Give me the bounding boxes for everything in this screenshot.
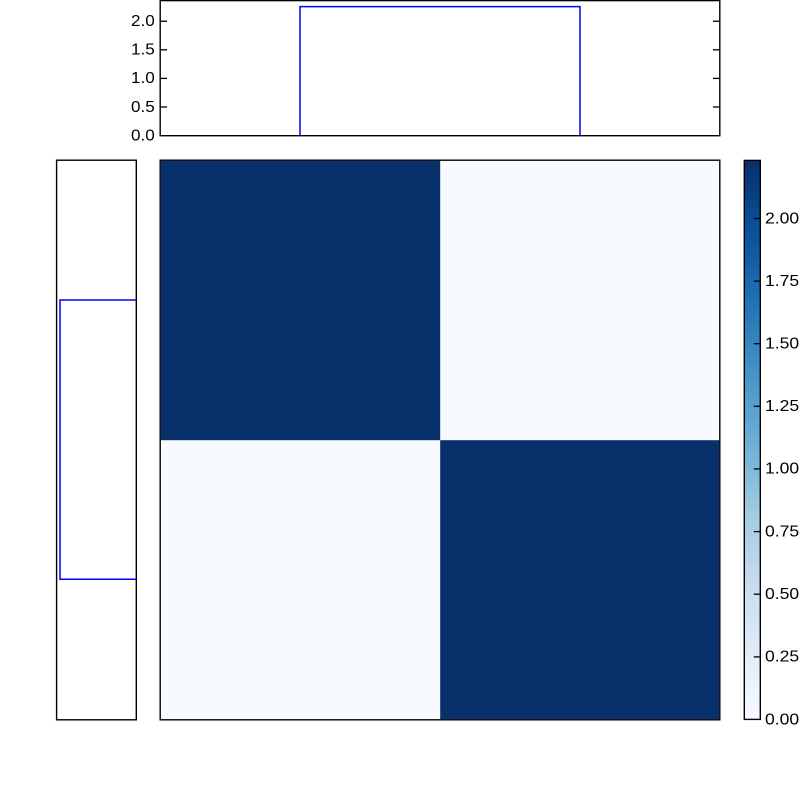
svg-text:0.75: 0.75 bbox=[765, 523, 799, 540]
svg-text:1.50: 1.50 bbox=[765, 336, 799, 353]
svg-text:0.5: 0.5 bbox=[131, 99, 155, 116]
svg-text:2.0: 2.0 bbox=[131, 13, 155, 30]
svg-text:1.25: 1.25 bbox=[765, 398, 799, 415]
svg-text:0.0: 0.0 bbox=[131, 127, 155, 144]
svg-text:0.50: 0.50 bbox=[765, 586, 799, 603]
svg-text:0.00: 0.00 bbox=[765, 711, 799, 728]
svg-text:1.75: 1.75 bbox=[765, 273, 799, 290]
svg-text:2.00: 2.00 bbox=[765, 210, 799, 227]
svg-text:1.5: 1.5 bbox=[131, 42, 155, 59]
svg-text:0.25: 0.25 bbox=[765, 649, 799, 666]
svg-text:1.00: 1.00 bbox=[765, 461, 799, 478]
svg-text:1.0: 1.0 bbox=[131, 70, 155, 87]
